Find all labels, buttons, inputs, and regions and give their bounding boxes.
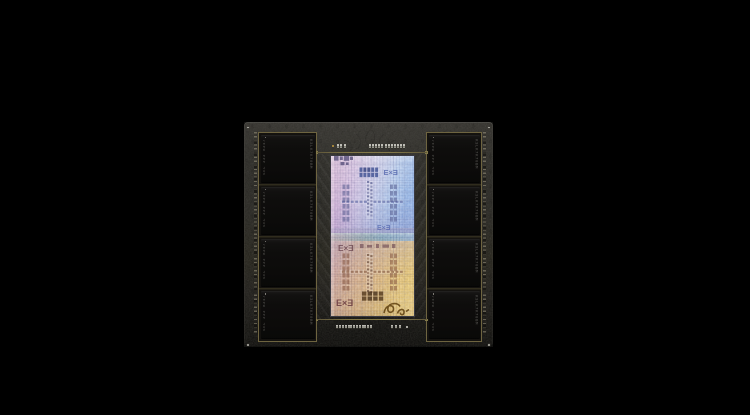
- svg-text:E×Ǝ: E×Ǝ: [338, 244, 354, 253]
- svg-text:E×Ǝ: E×Ǝ: [336, 298, 353, 308]
- svg-text:E×Ǝ: E×Ǝ: [383, 168, 397, 177]
- svg-text:E×Ǝ: E×Ǝ: [377, 225, 391, 232]
